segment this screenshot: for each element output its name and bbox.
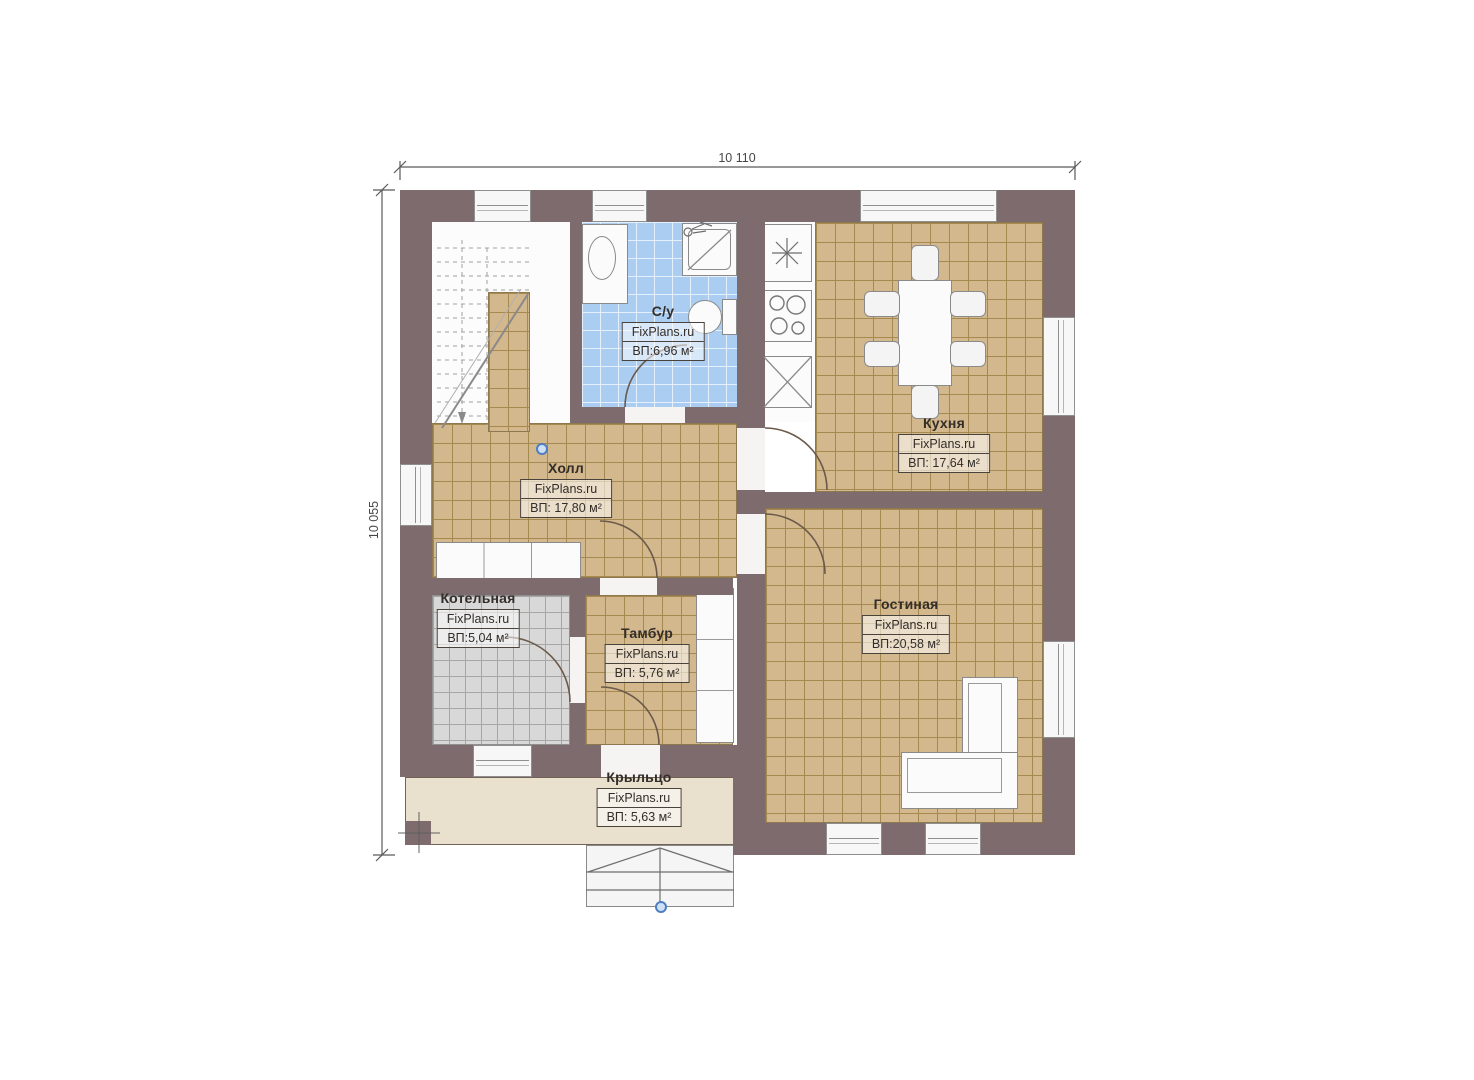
brand-watermark: FixPlans.ru — [899, 435, 989, 454]
wall-bathroom-bottom — [570, 407, 625, 423]
sofa-seat — [907, 758, 1002, 793]
wall-center — [737, 222, 765, 428]
room-area: ВП:6,96 м² — [623, 342, 704, 360]
hall-wardrobe — [436, 542, 581, 580]
wall-boiler-vestibule — [570, 703, 585, 745]
brand-watermark: FixPlans.ru — [438, 610, 519, 629]
room-info-box: FixPlans.ru ВП: 5,76 м² — [605, 644, 690, 683]
sofa-horizontal-section — [901, 752, 1018, 809]
wall-kitchen-living — [765, 492, 1043, 508]
chair — [950, 291, 986, 317]
brand-watermark: FixPlans.ru — [598, 789, 681, 808]
room-name: Крыльцо — [606, 769, 671, 785]
floor-plan-canvas: 10 110 10 055 С/у FixPlans.ru ВП:6,96 м²… — [0, 0, 1474, 1080]
door-opening-boiler — [570, 637, 585, 703]
window — [925, 823, 981, 855]
dimension-left-label: 10 055 — [367, 501, 381, 539]
stair-flight-wood — [488, 292, 530, 432]
wall-step — [733, 745, 765, 855]
room-name: Котельная — [440, 590, 515, 606]
brand-watermark: FixPlans.ru — [521, 480, 611, 499]
wall-bottom-right — [733, 823, 1075, 855]
window — [592, 190, 647, 222]
wall-bottom-left — [400, 745, 763, 777]
window — [400, 464, 432, 526]
entrance-axis-dot — [655, 901, 667, 913]
porch-column — [405, 821, 431, 845]
window — [474, 190, 531, 222]
brand-watermark: FixPlans.ru — [606, 645, 689, 664]
room-name: Тамбур — [621, 625, 673, 641]
window — [860, 190, 997, 222]
door-opening-bathroom — [625, 407, 685, 423]
room-name: Холл — [548, 460, 584, 476]
room-info-box: FixPlans.ru ВП:20,58 м² — [862, 615, 950, 654]
room-info-box: FixPlans.ru ВП:5,04 м² — [437, 609, 520, 648]
wall-bathroom-bottom — [685, 407, 737, 423]
vestibule-wardrobe — [696, 588, 734, 743]
wall-stairs-bathroom — [570, 222, 582, 423]
room-name: Кухня — [923, 415, 965, 431]
stove-icon — [763, 290, 812, 342]
wall-hall-bottom — [657, 578, 733, 595]
room-label-vestibule: Тамбур FixPlans.ru ВП: 5,76 м² — [605, 625, 690, 683]
room-label-living: Гостиная FixPlans.ru ВП:20,58 м² — [862, 596, 950, 654]
room-area: ВП: 5,76 м² — [606, 664, 689, 682]
chair — [911, 245, 939, 281]
porch-floor — [405, 777, 735, 845]
fridge-icon — [763, 224, 812, 282]
entrance-steps — [586, 845, 734, 907]
shower-tray — [688, 229, 731, 270]
room-label-hall: Холл FixPlans.ru ВП: 17,80 м² — [520, 460, 612, 518]
window — [1043, 317, 1075, 416]
level-marker-dot — [536, 443, 548, 455]
window — [1043, 641, 1075, 738]
room-name: Гостиная — [874, 596, 939, 612]
room-label-porch: Крыльцо FixPlans.ru ВП: 5,63 м² — [597, 769, 682, 827]
chair — [911, 385, 939, 419]
room-label-bathroom: С/у FixPlans.ru ВП:6,96 м² — [622, 303, 705, 361]
wall-boiler-vestibule — [570, 595, 585, 637]
door-opening-kitchen — [737, 428, 765, 490]
wall-center — [737, 490, 765, 514]
window — [473, 745, 532, 777]
room-area: ВП: 5,63 м² — [598, 808, 681, 826]
wall-right — [1043, 190, 1075, 855]
room-info-box: FixPlans.ru ВП:6,96 м² — [622, 322, 705, 361]
room-area: ВП: 17,64 м² — [899, 454, 989, 472]
chair — [864, 341, 900, 367]
door-opening-living — [737, 514, 765, 574]
room-info-box: FixPlans.ru ВП: 17,64 м² — [898, 434, 990, 473]
room-area: ВП: 17,80 м² — [521, 499, 611, 517]
shower-cabin — [682, 223, 737, 276]
wall-center — [737, 574, 765, 745]
chair — [864, 291, 900, 317]
room-area: ВП:5,04 м² — [438, 629, 519, 647]
room-info-box: FixPlans.ru ВП: 5,63 м² — [597, 788, 682, 827]
room-info-box: FixPlans.ru ВП: 17,80 м² — [520, 479, 612, 518]
room-label-boiler: Котельная FixPlans.ru ВП:5,04 м² — [437, 590, 520, 648]
door-opening-hall-vestibule — [600, 578, 657, 595]
washbasin-icon — [588, 236, 616, 280]
brand-watermark: FixPlans.ru — [863, 616, 949, 635]
brand-watermark: FixPlans.ru — [623, 323, 704, 342]
dining-table — [898, 280, 952, 386]
room-name: С/у — [652, 303, 674, 319]
chair — [950, 341, 986, 367]
room-label-kitchen: Кухня FixPlans.ru ВП: 17,64 м² — [898, 415, 990, 473]
toilet-tank — [722, 299, 737, 335]
room-area: ВП:20,58 м² — [863, 635, 949, 653]
dimension-top-label: 10 110 — [718, 151, 755, 165]
sink-cabinet-icon — [763, 356, 812, 408]
window — [826, 823, 882, 855]
